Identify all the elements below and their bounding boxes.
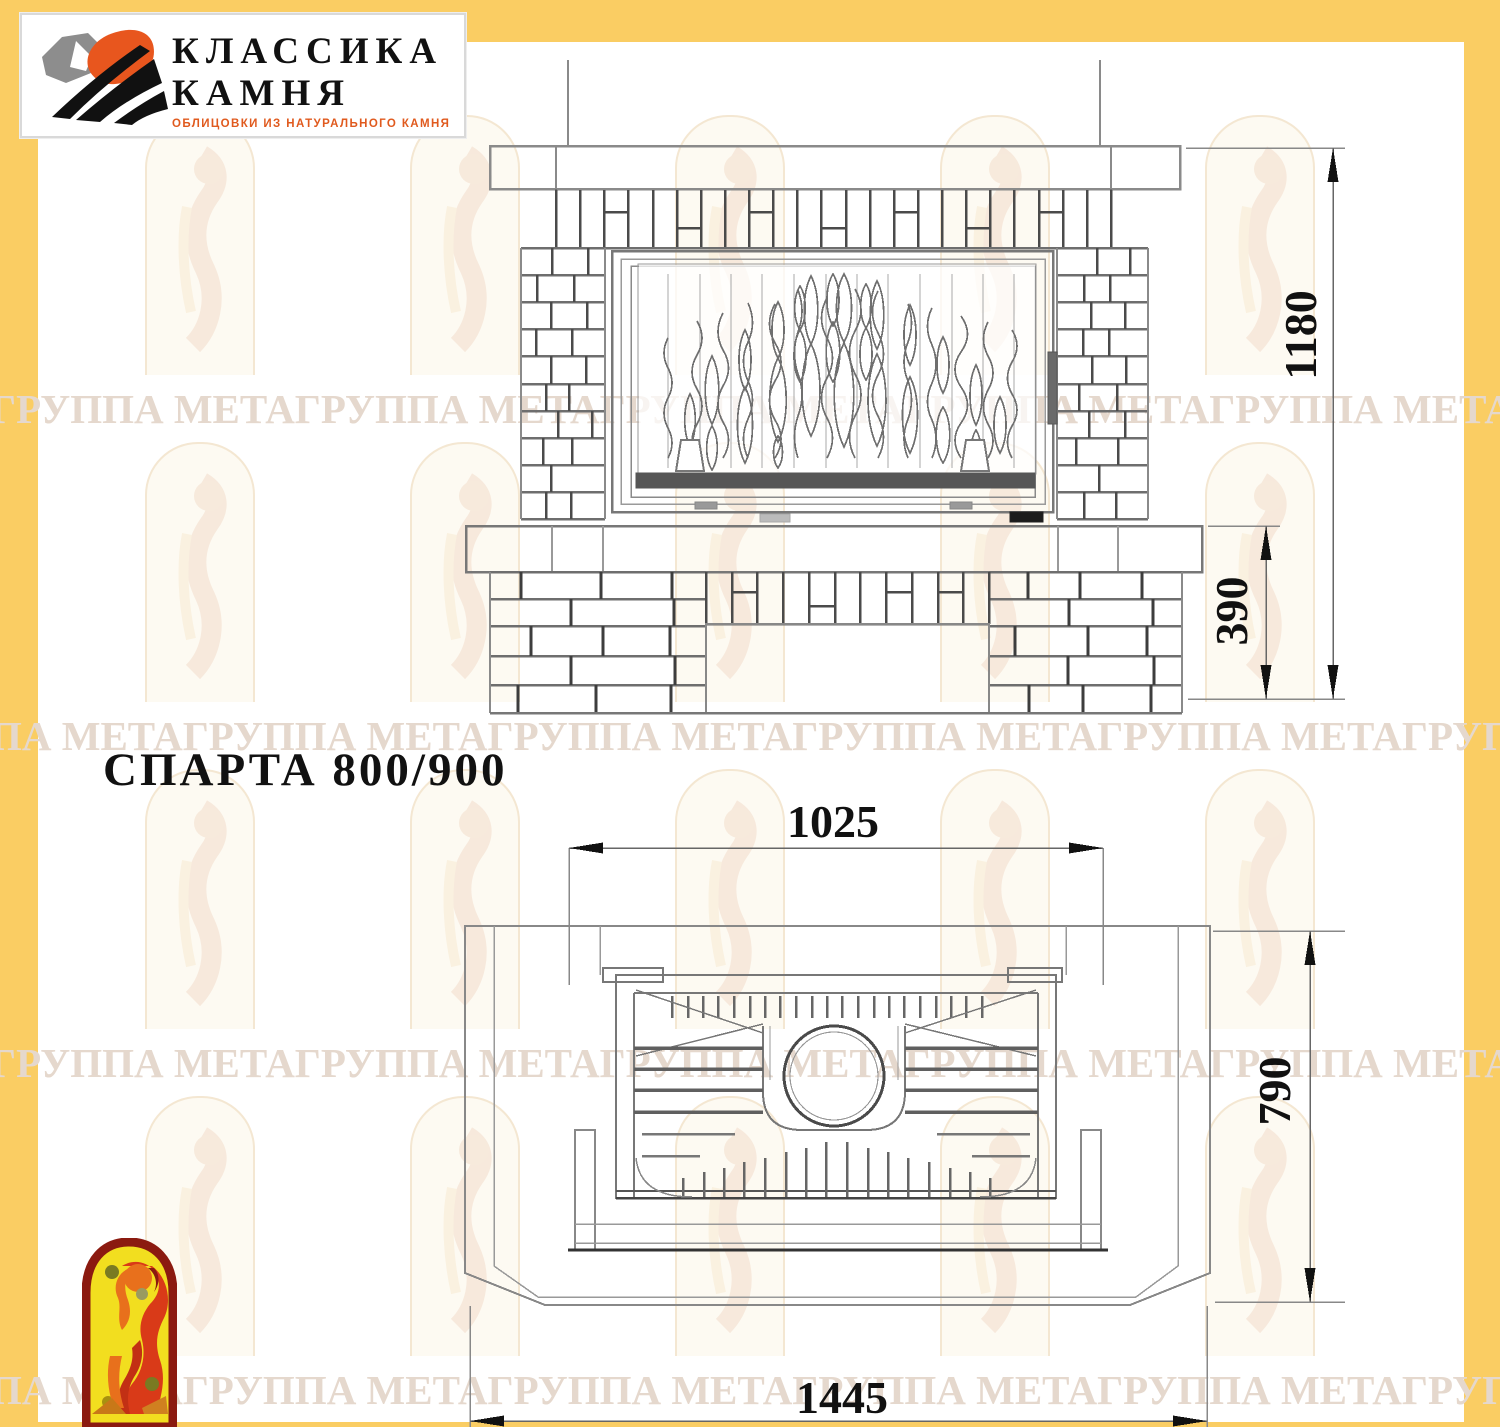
svg-text:390: 390 xyxy=(1206,577,1257,646)
svg-text:1445: 1445 xyxy=(796,1372,888,1423)
svg-text:1180: 1180 xyxy=(1275,290,1326,379)
svg-text:1025: 1025 xyxy=(787,796,879,847)
svg-text:790: 790 xyxy=(1249,1057,1300,1126)
